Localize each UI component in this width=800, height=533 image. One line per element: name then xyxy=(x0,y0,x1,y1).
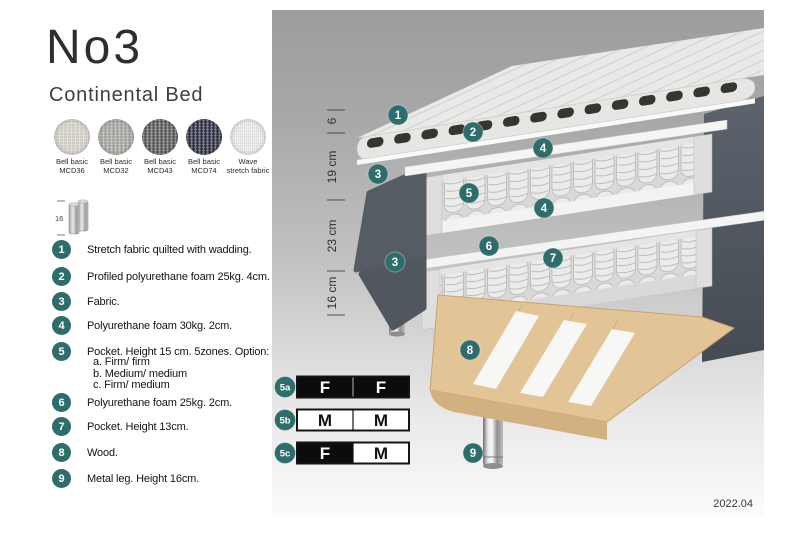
legend-text: Stretch fabric quilted with wadding. xyxy=(87,244,252,256)
svg-text:7: 7 xyxy=(550,253,556,265)
fabric-code: MCD36 xyxy=(50,167,94,176)
legend-option: a. Firm/ firm xyxy=(93,357,187,369)
fabric-swatches: Bell basicMCD36 Bell basicMCD32 Bell bas… xyxy=(50,119,270,175)
version-date: 2022.04 xyxy=(713,498,753,510)
legend-text: Polyurethane foam 25kg. 2cm. xyxy=(87,397,232,409)
diagram-callout-4: 4 xyxy=(533,138,553,158)
legend-number-badge: 5 xyxy=(52,342,71,361)
legend-number-badge: 1 xyxy=(52,240,71,259)
legend-option: c. Firm/ medium xyxy=(93,380,187,392)
legend-text: Fabric. xyxy=(87,296,120,308)
diagram-callout-6: 6 xyxy=(479,236,499,256)
bed-cutaway-panel: 619 cm23 cm16 cm 12435467389 5aFF5bMM5cF… xyxy=(272,10,764,516)
spec-sheet: No3 Continental Bed Bell basicMCD36 Bell… xyxy=(0,0,800,533)
fabric-code: MCD43 xyxy=(138,167,182,176)
fabric-swatch: Bell basicMCD43 xyxy=(138,119,182,175)
wood-slat-base xyxy=(430,295,734,440)
firmness-row-5a: 5aFF xyxy=(275,377,410,398)
svg-text:4: 4 xyxy=(541,203,548,215)
firmness-cell: M xyxy=(374,444,388,463)
firmness-cell: F xyxy=(320,444,330,463)
svg-text:5: 5 xyxy=(466,188,473,200)
svg-text:5b: 5b xyxy=(279,416,290,427)
firmness-cell: F xyxy=(376,378,386,397)
diagram-callout-9: 9 xyxy=(463,443,483,463)
legend-text: Metal leg. Height 16cm. xyxy=(87,473,199,485)
fabric-swatch: Bell basicMCD32 xyxy=(94,119,138,175)
firmness-cell: M xyxy=(318,411,332,430)
diagram-callout-3: 3 xyxy=(385,252,405,272)
diagram-callout-7: 7 xyxy=(543,248,563,268)
legend-item-5-options: a. Firm/ firm b. Medium/ medium c. Firm/… xyxy=(93,357,187,392)
diagram-callout-8: 8 xyxy=(460,340,480,360)
fabric-code: MCD32 xyxy=(94,167,138,176)
legend-number-badge: 4 xyxy=(52,316,71,335)
svg-text:6: 6 xyxy=(486,241,492,253)
svg-text:5a: 5a xyxy=(280,383,291,394)
legend-text: Pocket. Height 13cm. xyxy=(87,421,189,433)
firmness-option-table: 5aFF5bMM5cFM xyxy=(275,377,410,464)
svg-text:4: 4 xyxy=(540,143,547,155)
svg-text:5c: 5c xyxy=(280,449,291,460)
fabric-swatch: Wavestretch fabric xyxy=(226,119,270,175)
fabric-swatch-circle xyxy=(54,119,90,155)
leg-height-icon: 16 xyxy=(54,194,100,245)
page-title: No3 xyxy=(46,20,143,75)
svg-text:2: 2 xyxy=(470,127,476,139)
fabric-swatch: Bell basicMCD74 xyxy=(182,119,226,175)
legend-item-3: 3 Fabric. xyxy=(52,292,120,311)
legend-number-badge: 3 xyxy=(52,292,71,311)
legend-item-9: 9 Metal leg. Height 16cm. xyxy=(52,469,199,488)
svg-text:9: 9 xyxy=(470,448,476,460)
svg-text:3: 3 xyxy=(375,169,381,181)
firmness-cell: F xyxy=(320,378,330,397)
fabric-swatch-circle xyxy=(98,119,134,155)
ruler-label: 23 cm xyxy=(325,220,339,253)
fabric-swatch: Bell basicMCD36 xyxy=(50,119,94,175)
legend-number-badge: 7 xyxy=(52,417,71,436)
ruler-label: 6 xyxy=(325,117,339,124)
legend-number-badge: 2 xyxy=(52,267,71,286)
fabric-code: stretch fabric xyxy=(226,167,270,176)
page-subtitle: Continental Bed xyxy=(49,84,203,107)
legend-text: Polyurethane foam 30kg. 2cm. xyxy=(87,320,232,332)
diagram-callout-2: 2 xyxy=(463,122,483,142)
diagram-callout-3: 3 xyxy=(368,164,388,184)
legend-number-badge: 6 xyxy=(52,393,71,412)
svg-text:3: 3 xyxy=(392,257,398,269)
legend-item-1: 1 Stretch fabric quilted with wadding. xyxy=(52,240,252,259)
legend-text: Wood. xyxy=(87,447,118,459)
legend-number-badge: 8 xyxy=(52,443,71,462)
leg-icon-height-label: 16 xyxy=(55,214,63,223)
diagram-callout-5: 5 xyxy=(459,183,479,203)
firmness-row-5c: 5cFM xyxy=(275,443,410,464)
svg-text:8: 8 xyxy=(467,345,474,357)
legend-item-6: 6 Polyurethane foam 25kg. 2cm. xyxy=(52,393,232,412)
svg-text:1: 1 xyxy=(395,110,402,122)
firmness-cell: M xyxy=(374,411,388,430)
legend-item-2: 2 Profiled polyurethane foam 25kg. 4cm. xyxy=(52,267,270,286)
legend-item-8: 8 Wood. xyxy=(52,443,118,462)
legend-item-4: 4 Polyurethane foam 30kg. 2cm. xyxy=(52,316,232,335)
diagram-callout-4: 4 xyxy=(534,198,554,218)
bed-cutaway-illustration: 619 cm23 cm16 cm 12435467389 5aFF5bMM5cF… xyxy=(272,10,764,516)
ruler-label: 16 cm xyxy=(325,277,339,310)
fabric-swatch-circle xyxy=(230,119,266,155)
fabric-swatch-circle xyxy=(142,119,178,155)
leg-cylinder xyxy=(78,201,88,231)
fabric-swatch-circle xyxy=(186,119,222,155)
dimension-ruler: 619 cm23 cm16 cm xyxy=(325,110,345,315)
legend-text: Profiled polyurethane foam 25kg. 4cm. xyxy=(87,271,270,283)
diagram-callout-1: 1 xyxy=(388,105,408,125)
leg-cylinder xyxy=(69,204,79,234)
fabric-code: MCD74 xyxy=(182,167,226,176)
ruler-label: 19 cm xyxy=(325,151,339,184)
firmness-row-5b: 5bMM xyxy=(275,410,410,431)
legend-item-7: 7 Pocket. Height 13cm. xyxy=(52,417,189,436)
legend-number-badge: 9 xyxy=(52,469,71,488)
